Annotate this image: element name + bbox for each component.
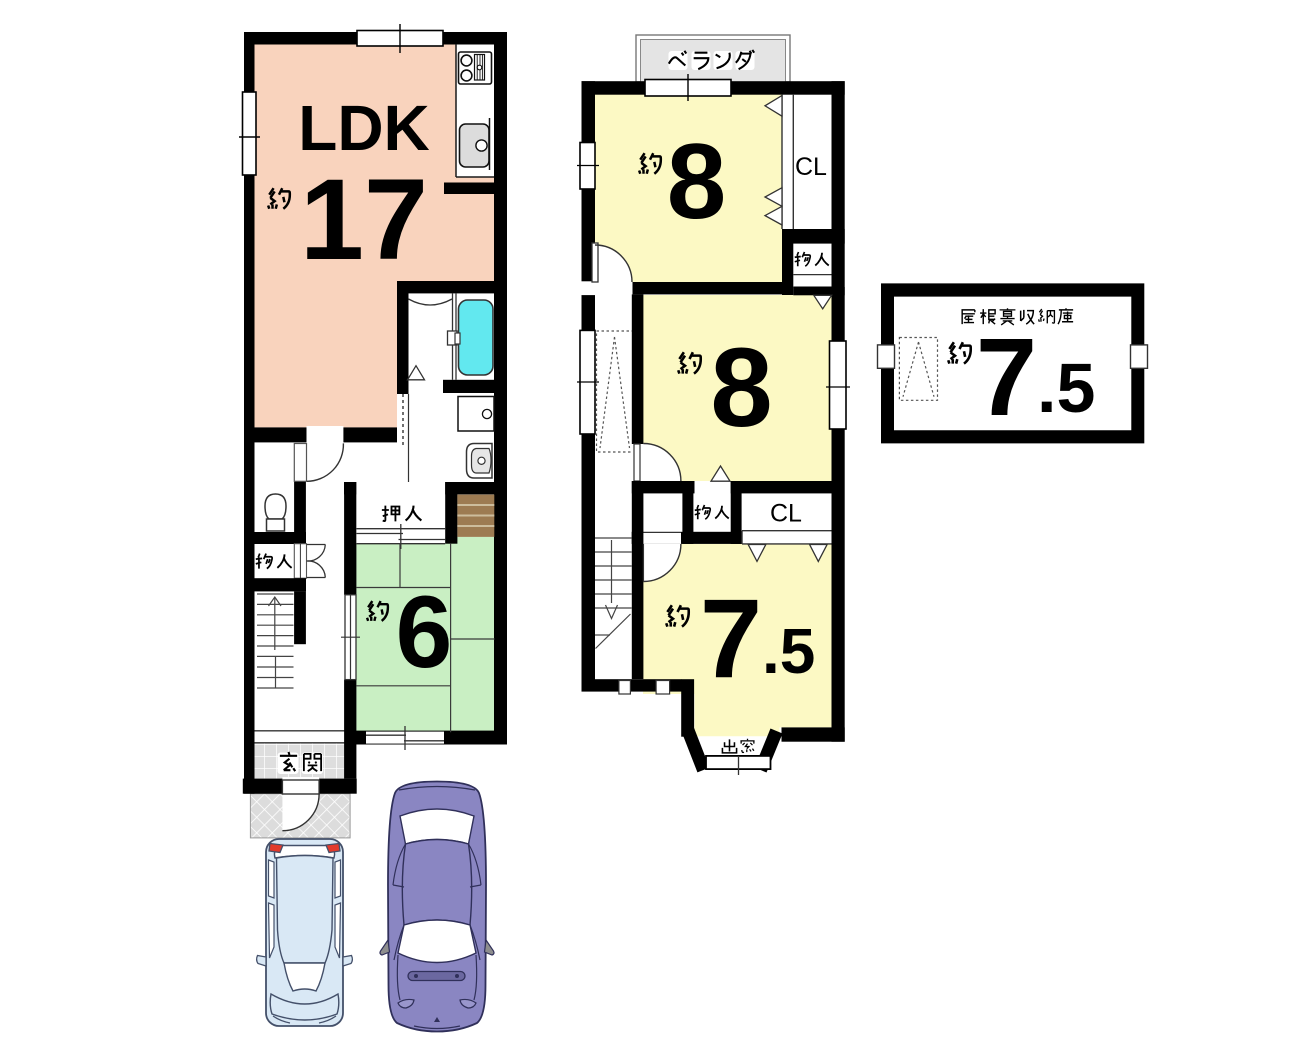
- svg-text:.5: .5: [1037, 349, 1095, 427]
- svg-text:LDK: LDK: [298, 92, 430, 164]
- svg-text:CL: CL: [770, 500, 802, 528]
- svg-text:8: 8: [710, 325, 772, 450]
- svg-text:.5: .5: [762, 615, 815, 687]
- svg-text:7: 7: [976, 316, 1037, 439]
- svg-text:CL: CL: [795, 153, 827, 181]
- svg-text:8: 8: [667, 121, 727, 241]
- svg-text:7: 7: [700, 576, 762, 701]
- svg-text:17: 17: [300, 156, 428, 284]
- svg-text:6: 6: [396, 575, 453, 689]
